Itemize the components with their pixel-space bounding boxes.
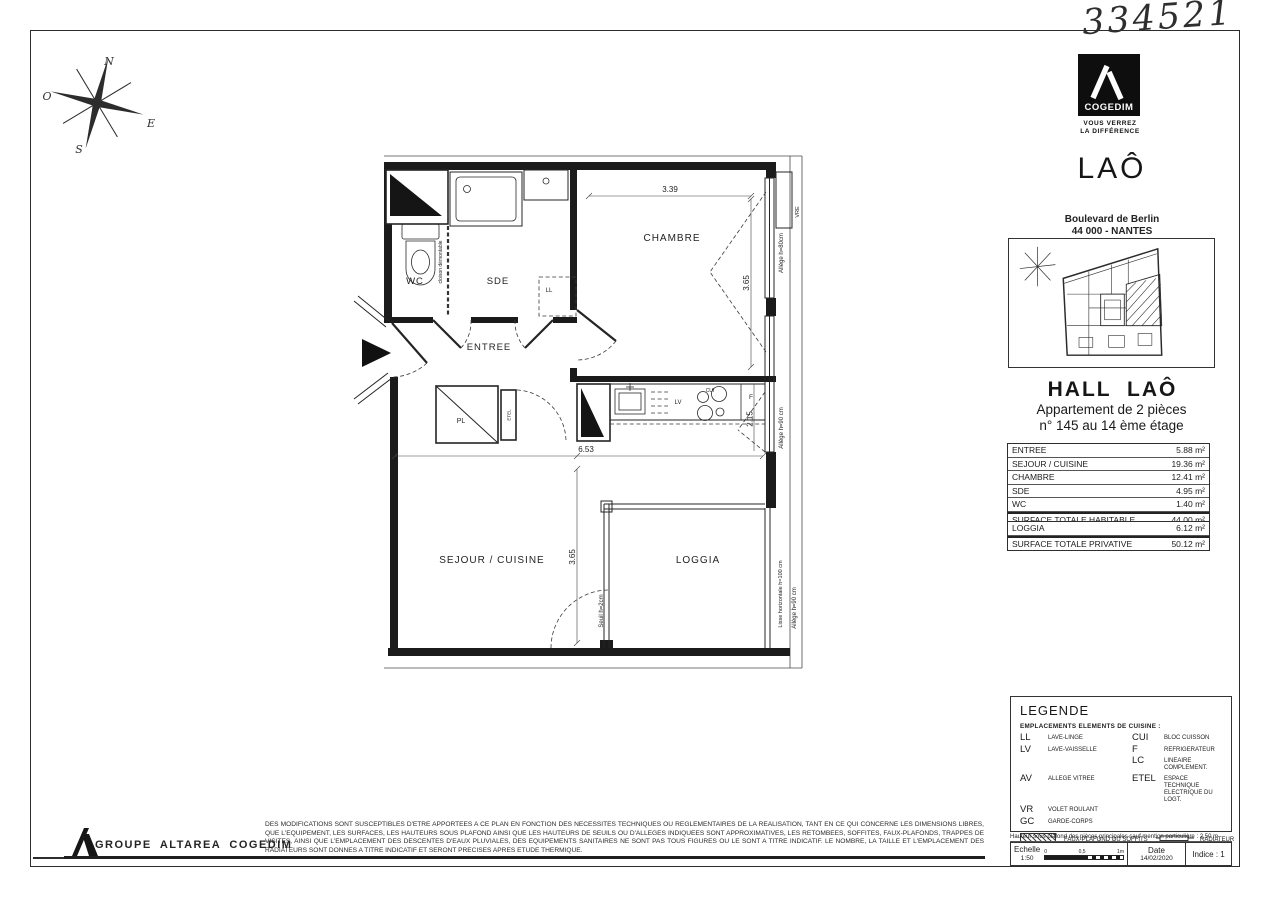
row-label: SEJOUR / CUISINE: [1012, 459, 1088, 469]
dim-sejour-height: 3.65: [568, 549, 577, 565]
table-row: SEJOUR / CUISINE19.36 m²: [1008, 458, 1209, 472]
hall-cupboard: [436, 386, 516, 443]
floor-plan: WC SDE ENTREE CHAMBRE SEJOUR / CUISINE L…: [350, 140, 830, 685]
row-label: SURFACE TOTALE PRIVATIVE: [1012, 539, 1132, 549]
table-row: ENTREE5.88 m²: [1008, 444, 1209, 458]
shower-tray: [450, 172, 522, 226]
annotation-cloison: cloison démontable: [438, 240, 444, 283]
annotation-seuil: Seuil h=2cm: [599, 594, 605, 627]
fixture-label-f: F: [749, 394, 753, 401]
room-label-chambre: CHAMBRE: [643, 233, 700, 244]
apartment-description: Appartement de 2 pièces n° 145 au 14 ème…: [1008, 402, 1215, 434]
legend-label: VOLET ROULANT: [1048, 805, 1132, 814]
room-label-sejour-cuisine: SEJOUR / CUISINE: [439, 555, 544, 566]
row-value: 6.12 m²: [1176, 523, 1205, 533]
room-label-wc: WC: [406, 276, 424, 287]
address-line1: Boulevard de Berlin: [1032, 214, 1192, 226]
apartment-number-floor: n° 145 au 14 ème étage: [1008, 418, 1215, 434]
logo-tagline-line1: VOUS VERREZ: [1058, 120, 1162, 128]
footer-rule: [64, 856, 985, 860]
legend-label: ALLEGE VITREE: [1048, 774, 1132, 783]
cogedim-logo: COGEDIM: [1078, 54, 1140, 116]
altarea-logo: [58, 824, 98, 858]
key-plan-box: [1008, 238, 1215, 368]
row-label: WC: [1012, 499, 1026, 509]
ceiling-height-note: Hauteur sous plafond des pièces principa…: [1010, 834, 1232, 842]
logo-tagline: VOUS VERREZ LA DIFFÉRENCE: [1058, 120, 1162, 136]
index-value: Indice : 1: [1192, 850, 1224, 859]
project-address: Boulevard de Berlin 44 000 - NANTES: [1032, 214, 1192, 238]
legend-abbr: LV: [1020, 745, 1048, 755]
key-plan-drawing: [1009, 239, 1214, 367]
scale-tick: 0,5: [1079, 849, 1086, 855]
scale-tick: 1m: [1117, 849, 1124, 855]
legend-abbreviations: LLLAVE-LINGE CUIBLOC CUISSON LVLAVE-VAIS…: [1020, 733, 1222, 827]
legend-title: LEGENDE: [1020, 703, 1222, 718]
compass-rose: N O E S: [35, 48, 165, 158]
fixture-label-lv: LV: [675, 400, 682, 406]
compass-west-label: O: [42, 90, 51, 103]
row-value: 50.12 m²: [1171, 539, 1205, 549]
loggia-walls: [601, 501, 765, 648]
key-plan-interior: [1064, 254, 1161, 355]
legend-label: [1164, 805, 1222, 807]
legend-label: [1164, 817, 1222, 819]
private-surface-table: LOGGIA6.12 m² SURFACE TOTALE PRIVATIVE50…: [1007, 521, 1210, 551]
scale-bar: 0 0,5 1m: [1044, 849, 1124, 860]
legend-abbr: LC: [1132, 756, 1164, 766]
dim-chambre-height: 3.65: [742, 275, 751, 291]
logo-tagline-line2: LA DIFFÉRENCE: [1058, 128, 1162, 136]
wc-shaft: [386, 170, 448, 224]
key-plan-building-outline: [1063, 249, 1161, 355]
dim-sejour-width: 6.53: [578, 445, 594, 454]
fixture-label-ll: LL: [546, 288, 553, 294]
kitchen-counter: [577, 383, 765, 441]
scale-cell: Echelle 1:50 0 0,5 1m: [1010, 842, 1128, 866]
legend-abbr: CUI: [1132, 733, 1164, 743]
fixture-label-cui: CUI: [706, 388, 715, 394]
table-row: LOGGIA6.12 m²: [1008, 522, 1209, 536]
room-label-loggia: LOGGIA: [676, 555, 720, 566]
company-name: GROUPE ALTAREA COGEDIM: [95, 839, 292, 851]
annotation-lisse-horizontale: Lisse horizontale h=100 cm: [778, 560, 784, 628]
cogedim-logo-wordmark: COGEDIM: [1085, 102, 1134, 113]
room-label-entree: ENTREE: [467, 342, 512, 353]
row-label: SDE: [1012, 486, 1029, 496]
table-row: WC1.40 m²: [1008, 498, 1209, 512]
fixture-label-pl: PL: [457, 418, 466, 425]
compass-south-label: S: [75, 143, 83, 156]
legend-label: ESPACE TECHNIQUE ELECTRIQUE DU LOGT.: [1164, 774, 1222, 804]
compass-north-label: N: [103, 55, 114, 68]
key-plan-compass-icon: [1020, 247, 1055, 286]
key-plan-highlighted-apartment: [1126, 274, 1161, 325]
legend-label: GARDE-CORPS: [1048, 817, 1132, 826]
row-label: ENTREE: [1012, 445, 1046, 455]
legend-abbr: ETEL: [1132, 774, 1164, 784]
compass-star: [39, 48, 155, 158]
legend-abbr: LL: [1020, 733, 1048, 743]
legend-abbr: VR: [1020, 805, 1048, 815]
address-line2: 44 000 - NANTES: [1032, 226, 1192, 238]
row-value: 12.41 m²: [1171, 472, 1205, 482]
row-value: 1.40 m²: [1176, 499, 1205, 509]
row-label: LOGGIA: [1012, 523, 1045, 533]
entrance-arrow-icon: [362, 339, 391, 367]
scale-value: 1:50: [1014, 854, 1040, 863]
fixture-label-etel: ETEL: [507, 409, 512, 421]
legend-abbr: AV: [1020, 774, 1048, 784]
legend-abbr: GC: [1020, 817, 1048, 827]
annotation-vre: VRE: [795, 206, 801, 218]
annotation-allege-80: Allège h=80cm: [779, 233, 785, 273]
legend-label: BLOC CUISSON: [1164, 733, 1222, 742]
washbasin: [524, 170, 568, 200]
apartment-type: Appartement de 2 pièces: [1008, 402, 1215, 418]
row-value: 4.95 m²: [1176, 486, 1205, 496]
annotation-allege-90-kitchen: Allège h=90 cm: [779, 407, 785, 449]
plan-disclaimer: DES MODIFICATIONS SONT SUSCEPTIBLES D'ET…: [265, 821, 984, 855]
index-cell: Indice : 1: [1186, 842, 1232, 866]
legend-label: [1048, 756, 1132, 758]
date-label: Date: [1148, 846, 1165, 855]
residence-name: LAÔ: [1032, 152, 1192, 186]
hall-title: HALL LAÔ: [1020, 378, 1205, 402]
footer-rule-left: [33, 857, 65, 859]
dim-chambre-width: 3.39: [662, 185, 678, 194]
surface-table: ENTREE5.88 m² SEJOUR / CUISINE19.36 m² C…: [1007, 443, 1210, 527]
row-label: CHAMBRE: [1012, 472, 1055, 482]
scale-tick: 0: [1044, 849, 1047, 855]
scale-label: Echelle: [1014, 845, 1040, 854]
legend-label: REFRIGERATEUR: [1164, 745, 1222, 754]
date-value: 14/02/2020: [1140, 855, 1173, 862]
room-label-sde: SDE: [487, 276, 510, 287]
row-value: 5.88 m²: [1176, 445, 1205, 455]
row-value: 19.36 m²: [1171, 459, 1205, 469]
compass-east-label: E: [146, 117, 155, 130]
table-row: SDE4.95 m²: [1008, 485, 1209, 499]
legend-box: LEGENDE EMPLACEMENTS ELEMENTS DE CUISINE…: [1010, 696, 1232, 832]
annotation-allege-90-loggia: Allège h=90 cm: [792, 587, 798, 629]
legend-subtitle: EMPLACEMENTS ELEMENTS DE CUISINE :: [1020, 723, 1222, 730]
title-block: Echelle 1:50 0 0,5 1m Date 14/02/2020 In…: [1010, 842, 1232, 866]
table-row-total-privative: SURFACE TOTALE PRIVATIVE50.12 m²: [1008, 536, 1209, 551]
date-cell: Date 14/02/2020: [1128, 842, 1186, 866]
legend-abbr: F: [1132, 745, 1164, 755]
table-row: CHAMBRE12.41 m²: [1008, 471, 1209, 485]
legend-label: LAVE-LINGE: [1048, 733, 1132, 742]
dim-kitchen-depth: 2.15: [746, 411, 755, 427]
legend-label: LAVE-VAISSELLE: [1048, 745, 1132, 754]
legend-label: LINEAIRE COMPLEMENT.: [1164, 756, 1222, 772]
